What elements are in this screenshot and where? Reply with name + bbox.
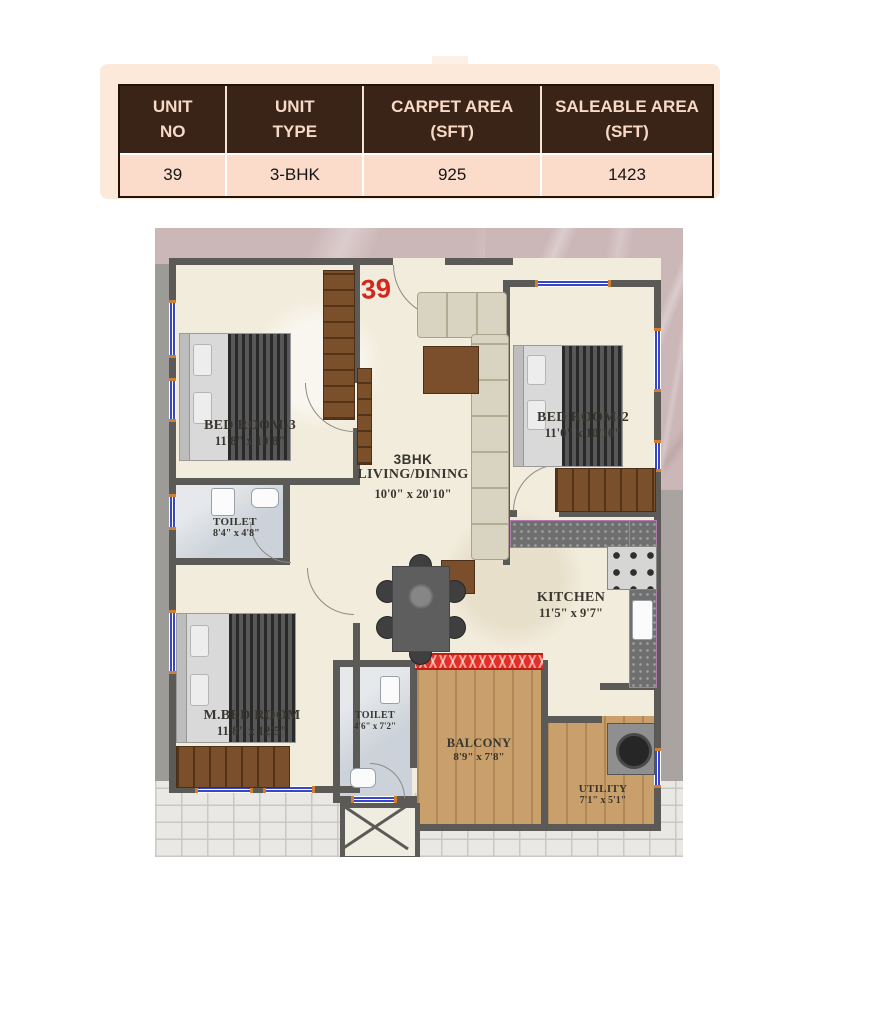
- wall: [169, 478, 359, 485]
- header-carpet-area: CARPET AREA (SFT): [364, 86, 542, 153]
- wall: [410, 660, 417, 768]
- floor-plan: 39 BED ROOM-3 11'8" x 10'8" BED ROOM-2 1…: [155, 228, 683, 857]
- bed-headboard: [514, 346, 524, 466]
- cell-carpet-area: 925: [364, 155, 542, 196]
- header-line: UNIT: [275, 94, 315, 120]
- foyer-cabinet-icon: [357, 368, 372, 465]
- washing-machine-drum: [616, 733, 652, 769]
- table-header-row: UNIT NO UNIT TYPE CARPET AREA (SFT) SALE…: [120, 86, 712, 153]
- room-dims: 10'0" x 20'10": [357, 487, 468, 502]
- room-name: BALCONY: [447, 736, 512, 751]
- wall: [169, 558, 290, 565]
- wc-icon: [251, 488, 279, 508]
- unit-type-label: 3BHK: [357, 452, 468, 467]
- header-line: (SFT): [430, 119, 473, 145]
- room-name: BED ROOM-2: [537, 410, 629, 426]
- wardrobe-icon: [323, 270, 355, 420]
- wall: [541, 660, 548, 831]
- bed-blanket: [562, 346, 622, 466]
- wall: [445, 258, 513, 265]
- window: [169, 610, 176, 674]
- cell-unit-no: 39: [120, 155, 227, 196]
- unit-info-table: UNIT NO UNIT TYPE CARPET AREA (SFT) SALE…: [118, 84, 714, 198]
- room-label-mbedroom: M.BED ROOM 11'8" x 12'5": [203, 708, 300, 739]
- coffee-table-icon: [423, 346, 479, 394]
- window: [169, 378, 176, 422]
- page: UNIT NO UNIT TYPE CARPET AREA (SFT) SALE…: [0, 0, 874, 1018]
- room-label-toilet2: TOILET 4'6" x 7'2": [354, 710, 396, 731]
- room-name: KITCHEN: [537, 590, 605, 606]
- room-dims: 8'9" x 7'8": [447, 751, 512, 763]
- room-label-toilet1: TOILET 8'4" x 4'8": [213, 516, 260, 539]
- wall: [333, 660, 340, 803]
- window: [169, 300, 176, 358]
- wardrobe-icon: [555, 468, 656, 512]
- header-unit-type: UNIT TYPE: [227, 86, 364, 153]
- bed-headboard: [177, 614, 187, 742]
- room-name: M.BED ROOM: [203, 708, 300, 724]
- header-line: NO: [160, 119, 186, 145]
- room-name: TOILET: [354, 710, 396, 721]
- room-label-bedroom2: BED ROOM-2 11'0" x 10'10": [537, 410, 629, 441]
- room-dims: 8'4" x 4'8": [213, 528, 260, 539]
- pillow-icon: [190, 674, 209, 706]
- duct-shaft: [340, 803, 420, 857]
- window: [169, 494, 176, 530]
- header-unit-no: UNIT NO: [120, 86, 227, 153]
- washing-machine-icon: [607, 723, 655, 775]
- pillow-icon: [527, 355, 546, 385]
- window: [535, 280, 611, 287]
- wardrobe-icon: [176, 746, 290, 788]
- wall: [353, 623, 360, 786]
- table-data-row: 39 3-BHK 925 1423: [120, 153, 712, 196]
- header-line: CARPET AREA: [391, 94, 513, 120]
- balcony-red-railing: [415, 653, 543, 670]
- room-dims: 11'8" x 10'8": [204, 434, 296, 449]
- room-name: BED ROOM-3: [204, 418, 296, 434]
- header-line: TYPE: [273, 119, 317, 145]
- window: [654, 748, 661, 788]
- room-label-utility: UTILITY 7'1" x 5'1": [579, 783, 628, 806]
- window: [654, 328, 661, 392]
- bed-headboard: [180, 334, 190, 460]
- room-dims: 4'6" x 7'2": [354, 721, 396, 731]
- washbasin-icon: [211, 488, 235, 516]
- pillow-icon: [190, 625, 209, 657]
- double-bed-icon: [513, 345, 623, 467]
- kitchen-sink-icon: [632, 600, 653, 640]
- sofa-icon: [417, 292, 507, 338]
- room-dims: 11'5" x 9'7": [537, 606, 605, 621]
- kitchen-tile-inset: [607, 546, 657, 590]
- washbasin-icon: [380, 676, 400, 704]
- room-label-kitchen: KITCHEN 11'5" x 9'7": [537, 590, 605, 621]
- cell-saleable-area: 1423: [542, 155, 712, 196]
- room-name: TOILET: [213, 516, 260, 528]
- duct-x-mark: [340, 803, 410, 851]
- cell-unit-type: 3-BHK: [227, 155, 364, 196]
- room-dims: 11'0" x 10'10": [537, 426, 629, 441]
- header-line: UNIT: [153, 94, 193, 120]
- header-line: SALEABLE AREA: [555, 94, 699, 120]
- room-label-balcony: BALCONY 8'9" x 7'8": [447, 736, 512, 763]
- room-dims: 7'1" x 5'1": [579, 795, 628, 806]
- header-line: (SFT): [605, 119, 648, 145]
- pillow-icon: [193, 344, 212, 376]
- room-name: LIVING/DINING: [357, 467, 468, 483]
- room-name: UTILITY: [579, 783, 628, 795]
- wc-icon: [350, 768, 376, 788]
- wall: [547, 716, 602, 723]
- wall: [333, 660, 417, 667]
- room-label-bedroom3: BED ROOM-3 11'8" x 10'8": [204, 418, 296, 449]
- wall: [413, 824, 661, 831]
- unit-number-label: 39: [360, 273, 392, 306]
- dining-table-icon: [392, 566, 450, 652]
- room-label-living-dining: 3BHK LIVING/DINING 10'0" x 20'10": [357, 452, 468, 502]
- room-dims: 11'8" x 12'5": [203, 724, 300, 739]
- header-saleable-area: SALEABLE AREA (SFT): [542, 86, 712, 153]
